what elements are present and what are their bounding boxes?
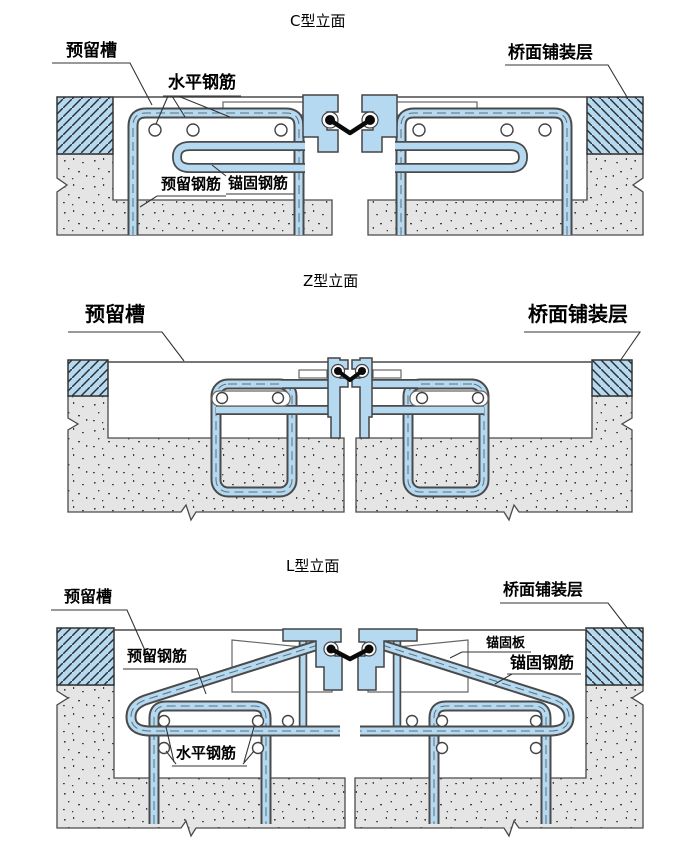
c-horizontal-rebar-label: 水平钢筋	[168, 74, 236, 94]
z-right-half	[352, 358, 632, 520]
l-type-section: L型立面 预留槽 桥面铺装层 预留钢筋 锚固板 锚固钢筋 水平钢筋	[0, 555, 680, 846]
c-type-section: C型立面 预留槽 水平钢筋 桥面铺装层 预留钢筋 锚固钢筋	[0, 0, 680, 270]
c-reserved-rebar-label: 预留钢筋	[161, 176, 221, 193]
l-horizontal-rebar-label: 水平钢筋	[176, 745, 236, 762]
z-type-title: Z型立面	[303, 273, 358, 290]
c-reserved-groove-label: 预留槽	[66, 42, 117, 62]
l-reserved-rebar-label: 预留钢筋	[127, 648, 187, 665]
l-type-title: L型立面	[286, 558, 339, 575]
l-anchor-rebar-label: 锚固钢筋	[510, 654, 574, 672]
l-deck-pavement-label: 桥面铺装层	[503, 581, 583, 599]
z-leader-lines	[68, 332, 640, 361]
l-right-half	[355, 628, 643, 836]
z-type-section: Z型立面 预留槽 桥面铺装层	[0, 270, 680, 555]
z-deck-pavement-label: 桥面铺装层	[528, 303, 628, 326]
c-type-title: C型立面	[290, 13, 345, 30]
diagram-canvas: C型立面 预留槽 水平钢筋 桥面铺装层 预留钢筋 锚固钢筋	[0, 0, 680, 846]
c-left-half	[57, 95, 338, 235]
z-left-half	[68, 358, 348, 520]
c-deck-pavement-label: 桥面铺装层	[508, 44, 593, 64]
c-anchor-rebar-label: 锚固钢筋	[228, 175, 288, 192]
c-right-half	[362, 95, 643, 235]
z-reserved-groove-label: 预留槽	[85, 303, 145, 326]
l-reserved-groove-label: 预留槽	[64, 588, 112, 606]
l-anchor-plate-label: 锚固板	[486, 637, 525, 652]
l-left-half	[57, 628, 345, 836]
